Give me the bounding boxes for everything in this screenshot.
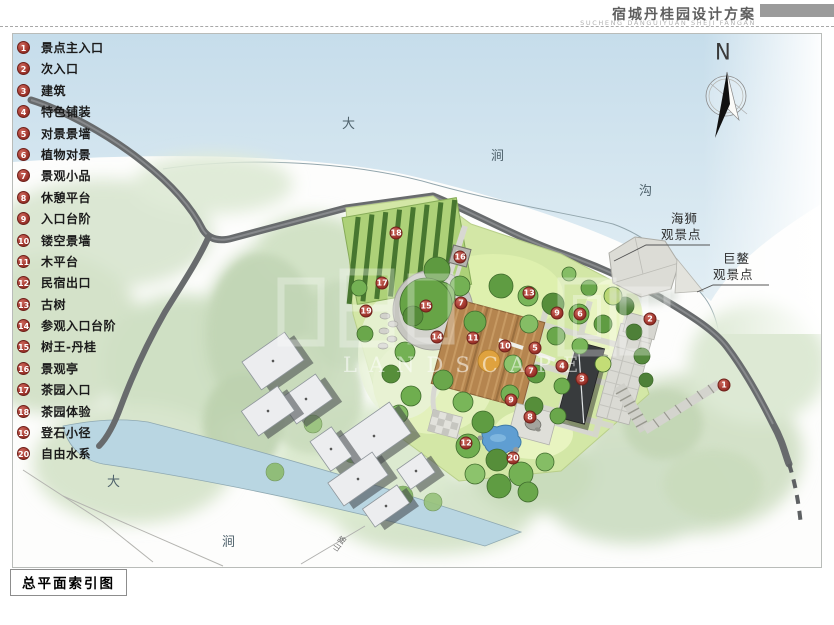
legend-number-badge: 16 (17, 362, 30, 375)
legend-label: 树王-丹桂 (41, 338, 96, 355)
legend-label: 休憩平台 (41, 189, 91, 206)
plan-frame: LANDSCAPE 大涧沟大涧 123456778991011121314151… (12, 33, 822, 568)
map-marker-10: 10 (499, 340, 512, 353)
map-marker-18: 18 (390, 227, 403, 240)
map-marker-1: 1 (718, 379, 731, 392)
legend-number-badge: 8 (17, 191, 30, 204)
legend-number-badge: 3 (17, 84, 30, 97)
map-marker-3: 3 (576, 373, 589, 386)
legend-item: 5对景景墙 (17, 127, 116, 140)
legend-label: 特色铺装 (41, 103, 91, 120)
map-marker-12: 12 (460, 437, 473, 450)
legend-number-badge: 12 (17, 276, 30, 289)
legend-number-badge: 4 (17, 105, 30, 118)
viewpoint-label-sealion: 海狮 观景点 (661, 211, 702, 243)
legend-label: 景观小品 (41, 167, 91, 184)
header-divider (0, 26, 834, 27)
legend-label: 古树 (41, 296, 66, 313)
viewpoint-line1: 海狮 (661, 211, 702, 227)
viewpoint-line2: 观景点 (713, 267, 754, 282)
map-marker-4: 4 (556, 360, 569, 373)
legend-label: 参观入口台阶 (41, 317, 116, 334)
legend-label: 入口台阶 (41, 210, 91, 227)
legend-label: 木平台 (41, 253, 79, 270)
map-marker-14: 14 (431, 331, 444, 344)
plan-sheet: 宿城丹桂园设计方案 SUCHENG DANGUIYUAN SHEJI FANGA… (0, 0, 834, 625)
legend-number-badge: 20 (17, 447, 30, 460)
legend-item: 4特色铺装 (17, 105, 116, 118)
viewpoint-label-turtle: 巨鳌 观景点 (713, 251, 754, 283)
map-marker-19: 19 (360, 305, 373, 318)
legend-label: 植物对景 (41, 146, 91, 163)
map-marker-13: 13 (523, 287, 536, 300)
legend-label: 民宿出口 (41, 274, 91, 291)
map-marker-11: 11 (467, 332, 480, 345)
water-label: 沟 (639, 180, 652, 199)
header-gray-block (760, 4, 834, 17)
sheet-caption: 总平面索引图 (10, 569, 127, 596)
legend-item: 8休憩平台 (17, 191, 116, 204)
water-label: 涧 (222, 531, 235, 550)
legend-item: 11木平台 (17, 255, 116, 268)
legend-number-badge: 11 (17, 255, 30, 268)
map-marker-8: 8 (524, 411, 537, 424)
legend-number-badge: 18 (17, 405, 30, 418)
legend-label: 登石小径 (41, 424, 91, 441)
legend-number-badge: 2 (17, 62, 30, 75)
water-label: 涧 (491, 145, 504, 164)
legend-number-badge: 13 (17, 298, 30, 311)
legend-number-badge: 19 (17, 426, 30, 439)
legend-number-badge: 15 (17, 340, 30, 353)
map-marker-7: 7 (455, 297, 468, 310)
legend-number-badge: 6 (17, 148, 30, 161)
legend-item: 18茶园体验 (17, 405, 116, 418)
map-marker-15: 15 (420, 300, 433, 313)
legend-item: 16景观亭 (17, 362, 116, 375)
legend-number-badge: 10 (17, 234, 30, 247)
map-marker-5: 5 (529, 342, 542, 355)
legend-item: 13古树 (17, 298, 116, 311)
legend-item: 17茶园入口 (17, 383, 116, 396)
legend-number-badge: 9 (17, 212, 30, 225)
legend-number-badge: 5 (17, 127, 30, 140)
legend-label: 茶园体验 (41, 403, 91, 420)
map-marker-17: 17 (376, 277, 389, 290)
map-marker-2: 2 (644, 313, 657, 326)
legend-label: 对景景墙 (41, 125, 91, 142)
legend-item: 14参观入口台阶 (17, 319, 116, 332)
map-marker-20: 20 (507, 452, 520, 465)
legend-number-badge: 1 (17, 41, 30, 54)
map-marker-9: 9 (551, 307, 564, 320)
legend-item: 2次入口 (17, 62, 116, 75)
water-label: 大 (342, 113, 355, 132)
legend-item: 6植物对景 (17, 148, 116, 161)
legend-item: 1景点主入口 (17, 41, 116, 54)
legend-label: 次入口 (41, 60, 79, 77)
legend-item: 12民宿出口 (17, 276, 116, 289)
watermark-text: LANDSCAPE (343, 353, 590, 377)
legend-label: 镂空景墙 (41, 232, 91, 249)
legend-number-badge: 14 (17, 319, 30, 332)
map-marker-9: 9 (505, 394, 518, 407)
compass-north-label: N (715, 39, 731, 64)
water-label: 大 (107, 471, 120, 490)
map-marker-16: 16 (454, 251, 467, 264)
legend-label: 景点主入口 (41, 39, 104, 56)
legend-label: 茶园入口 (41, 381, 91, 398)
legend-label: 建筑 (41, 82, 66, 99)
viewpoint-line1: 巨鳌 (713, 251, 754, 267)
legend-item: 10镂空景墙 (17, 234, 116, 247)
viewpoint-line2: 观景点 (661, 227, 702, 242)
legend: 1景点主入口2次入口3建筑4特色铺装5对景景墙6植物对景7景观小品8休憩平台9入… (17, 41, 116, 460)
legend-number-badge: 17 (17, 383, 30, 396)
legend-item: 19登石小径 (17, 426, 116, 439)
legend-item: 3建筑 (17, 84, 116, 97)
legend-label: 自由水系 (41, 445, 91, 462)
legend-item: 20自由水系 (17, 447, 116, 460)
legend-label: 景观亭 (41, 360, 79, 377)
legend-number-badge: 7 (17, 169, 30, 182)
legend-item: 15树王-丹桂 (17, 340, 116, 353)
map-marker-7: 7 (525, 365, 538, 378)
site-plan-artwork: LANDSCAPE (13, 34, 821, 567)
legend-item: 7景观小品 (17, 169, 116, 182)
map-marker-6: 6 (574, 308, 587, 321)
legend-item: 9入口台阶 (17, 212, 116, 225)
